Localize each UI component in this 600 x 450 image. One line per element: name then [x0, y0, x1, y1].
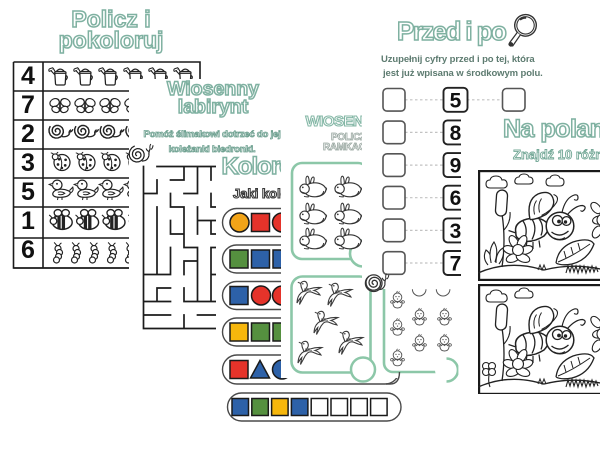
- svg-text:9: 9: [450, 155, 462, 178]
- svg-text:8: 8: [450, 122, 462, 145]
- svg-text:3: 3: [450, 220, 462, 243]
- svg-text:5: 5: [450, 89, 462, 112]
- svg-text:6: 6: [450, 187, 462, 210]
- svg-text:7: 7: [450, 253, 462, 276]
